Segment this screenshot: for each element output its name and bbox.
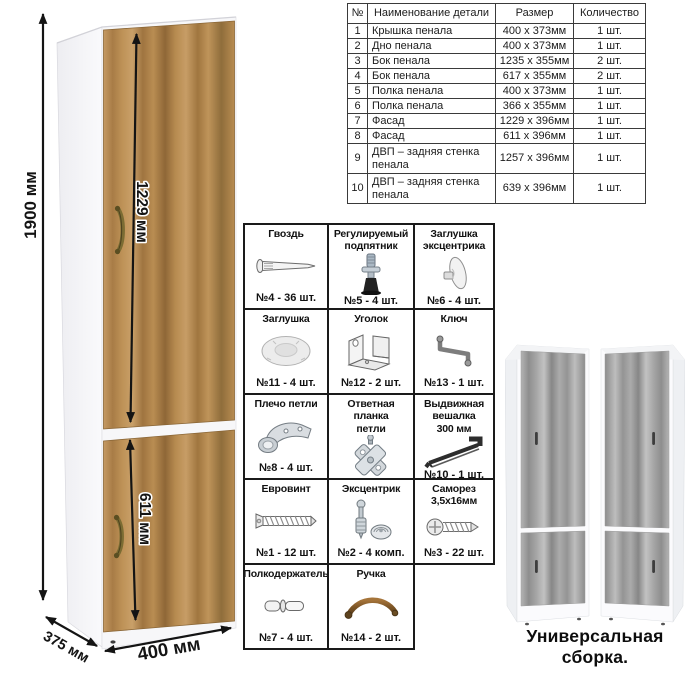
hardware-item: Уголок №12 - 2 шт. bbox=[329, 310, 413, 393]
part-name: Бок пенала bbox=[368, 54, 496, 69]
col-num: № bbox=[348, 4, 368, 24]
part-num: 1 bbox=[348, 24, 368, 39]
part-qty: 1 шт. bbox=[574, 99, 646, 114]
part-qty: 1 шт. bbox=[574, 84, 646, 99]
hardware-count: №1 - 12 шт. bbox=[256, 547, 316, 563]
hardware-title: Саморез 3,5x16мм bbox=[431, 480, 477, 508]
part-size: 1229 x 396мм bbox=[496, 114, 574, 129]
hardware-title: Ответная планка петли bbox=[329, 395, 413, 435]
hardware-title: Заглушка bbox=[262, 310, 309, 325]
hardware-item: Евровинт №1 - 12 шт. bbox=[245, 480, 327, 563]
part-num: 6 bbox=[348, 99, 368, 114]
adjustable-foot-icon bbox=[353, 253, 389, 295]
table-row: 2 Дно пенала 400 x 373мм 1 шт. bbox=[348, 39, 646, 54]
hinge-plate-icon bbox=[347, 435, 395, 477]
hardware-count: №10 - 1 шт. bbox=[424, 469, 484, 478]
wardrobe-side-panel bbox=[57, 27, 102, 647]
hardware-item: Саморез 3,5x16мм №3 - 22 шт. bbox=[415, 480, 493, 563]
part-size: 617 x 355мм bbox=[496, 69, 574, 84]
lower-facade-dimension-label: 611 мм bbox=[136, 493, 153, 545]
hardware-title: Гвоздь bbox=[268, 225, 303, 240]
part-name: ДВП – задняя стенка пенала bbox=[368, 144, 496, 174]
table-row: 5 Полка пенала 400 x 373мм 1 шт. bbox=[348, 84, 646, 99]
part-name: Полка пенала bbox=[368, 84, 496, 99]
part-size: 400 x 373мм bbox=[496, 24, 574, 39]
part-size: 611 x 396мм bbox=[496, 129, 574, 144]
part-size: 400 x 373мм bbox=[496, 84, 574, 99]
euroscrew-icon bbox=[253, 510, 319, 532]
hardware-count: №9 - 4 шт. bbox=[344, 477, 398, 478]
part-num: 4 bbox=[348, 69, 368, 84]
hardware-title: Заглушка эксцентрика bbox=[423, 225, 485, 253]
variants-caption: Универсальная сборка. bbox=[493, 626, 697, 668]
hardware-item: Выдвижная вешалка 300 мм №10 - 1 шт. bbox=[415, 395, 493, 478]
hex-key-icon bbox=[428, 333, 480, 369]
parts-table: № Наименование детали Размер Количество … bbox=[347, 3, 646, 204]
depth-dimension-label: 375 мм bbox=[40, 628, 91, 666]
foot-mark bbox=[110, 640, 115, 643]
cam-cap-icon bbox=[437, 253, 471, 295]
cap-icon bbox=[259, 333, 313, 369]
shelf-pin-icon bbox=[262, 597, 310, 615]
table-row: 10 ДВП – задняя стенка пенала 639 x 396м… bbox=[348, 174, 646, 204]
table-row: 3 Бок пенала 1235 x 355мм 2 шт. bbox=[348, 54, 646, 69]
part-qty: 1 шт. bbox=[574, 174, 646, 204]
variant-cabinet-left bbox=[505, 345, 589, 625]
hardware-title: Ключ bbox=[441, 310, 468, 325]
col-name: Наименование детали bbox=[368, 4, 496, 24]
part-size: 366 x 355мм bbox=[496, 99, 574, 114]
hardware-grid: Гвоздь №4 - 36 шт. Регулируемый подпятни… bbox=[243, 223, 495, 650]
part-qty: 1 шт. bbox=[574, 129, 646, 144]
hardware-item: Ручка №14 - 2 шт. bbox=[329, 565, 413, 648]
part-size: 1257 x 396мм bbox=[496, 144, 574, 174]
hinge-arm-icon bbox=[256, 416, 316, 456]
hardware-title: Полкодержатель bbox=[245, 565, 327, 580]
part-size: 400 x 373мм bbox=[496, 39, 574, 54]
table-row: 7 Фасад 1229 x 396мм 1 шт. bbox=[348, 114, 646, 129]
height-dimension-label: 1900 мм bbox=[21, 171, 40, 239]
part-num: 5 bbox=[348, 84, 368, 99]
table-row: 8 Фасад 611 x 396мм 1 шт. bbox=[348, 129, 646, 144]
hardware-title: Регулируемый подпятник bbox=[334, 225, 408, 253]
part-name: ДВП – задняя стенка пенала bbox=[368, 174, 496, 204]
table-row: 1 Крышка пенала 400 x 373мм 1 шт. bbox=[348, 24, 646, 39]
hardware-title: Евровинт bbox=[261, 480, 310, 495]
part-name: Крышка пенала bbox=[368, 24, 496, 39]
upper-facade-dimension-label: 1229 мм bbox=[133, 181, 150, 243]
part-qty: 1 шт. bbox=[574, 24, 646, 39]
col-qty: Количество bbox=[574, 4, 646, 24]
table-row: 9 ДВП – задняя стенка пенала 1257 x 396м… bbox=[348, 144, 646, 174]
hardware-title: Выдвижная вешалка 300 мм bbox=[424, 395, 484, 435]
part-num: 2 bbox=[348, 39, 368, 54]
hardware-count: №11 - 4 шт. bbox=[256, 377, 316, 393]
part-num: 9 bbox=[348, 144, 368, 174]
part-qty: 2 шт. bbox=[574, 54, 646, 69]
hardware-title: Плечо петли bbox=[254, 395, 317, 410]
table-row: 4 Бок пенала 617 x 355мм 2 шт. bbox=[348, 69, 646, 84]
part-size: 639 x 396мм bbox=[496, 174, 574, 204]
hardware-item: Заглушка эксцентрика №6 - 4 шт. bbox=[415, 225, 493, 308]
part-qty: 1 шт. bbox=[574, 39, 646, 54]
hardware-count: №5 - 4 шт. bbox=[344, 295, 398, 308]
table-header-row: № Наименование детали Размер Количество bbox=[348, 4, 646, 24]
hardware-item: Эксцентрик №2 - 4 комп. bbox=[329, 480, 413, 563]
part-qty: 1 шт. bbox=[574, 144, 646, 174]
part-name: Дно пенала bbox=[368, 39, 496, 54]
cabinet-diagram: 1900 мм 1229 мм 611 мм 375 мм 400 мм bbox=[0, 0, 240, 683]
hardware-count: №8 - 4 шт. bbox=[259, 462, 313, 478]
part-num: 8 bbox=[348, 129, 368, 144]
hardware-item: Ответная планка петли №9 - 4 шт. bbox=[329, 395, 413, 478]
hardware-title: Уголок bbox=[354, 310, 388, 325]
eccentric-icon bbox=[347, 499, 395, 543]
hardware-title: Ручка bbox=[356, 565, 385, 580]
variants-image bbox=[505, 340, 685, 632]
part-size: 1235 x 355мм bbox=[496, 54, 574, 69]
part-num: 10 bbox=[348, 174, 368, 204]
hardware-count: №13 - 1 шт. bbox=[424, 377, 484, 393]
hardware-count: №14 - 2 шт. bbox=[341, 632, 401, 648]
hardware-item: Плечо петли №8 - 4 шт. bbox=[245, 395, 327, 478]
part-qty: 1 шт. bbox=[574, 114, 646, 129]
part-qty: 2 шт. bbox=[574, 69, 646, 84]
hardware-item: Полкодержатель №7 - 4 шт. bbox=[245, 565, 327, 648]
part-name: Фасад bbox=[368, 114, 496, 129]
part-name: Фасад bbox=[368, 129, 496, 144]
hardware-item: Ключ №13 - 1 шт. bbox=[415, 310, 493, 393]
handle-icon bbox=[341, 591, 401, 621]
hardware-count: №7 - 4 шт. bbox=[259, 632, 313, 648]
hardware-count: №6 - 4 шт. bbox=[427, 295, 481, 308]
hardware-count: №12 - 2 шт. bbox=[341, 377, 401, 393]
part-num: 3 bbox=[348, 54, 368, 69]
hardware-item: Заглушка №11 - 4 шт. bbox=[245, 310, 327, 393]
hardware-title: Эксцентрик bbox=[342, 480, 400, 495]
part-name: Полка пенала bbox=[368, 99, 496, 114]
hardware-item: Регулируемый подпятник №5 - 4 шт. bbox=[329, 225, 413, 308]
hardware-count: №4 - 36 шт. bbox=[256, 292, 316, 308]
variant-cabinet-right bbox=[601, 345, 685, 625]
hardware-item: Гвоздь №4 - 36 шт. bbox=[245, 225, 327, 308]
corner-bracket-icon bbox=[343, 331, 399, 371]
selftapping-screw-icon bbox=[425, 514, 483, 540]
part-name: Бок пенала bbox=[368, 69, 496, 84]
part-num: 7 bbox=[348, 114, 368, 129]
pullout-hanger-icon bbox=[423, 435, 485, 469]
table-row: 6 Полка пенала 366 x 355мм 1 шт. bbox=[348, 99, 646, 114]
hardware-count: №2 - 4 комп. bbox=[337, 547, 404, 563]
col-size: Размер bbox=[496, 4, 574, 24]
nail-icon bbox=[254, 256, 318, 276]
hardware-count: №3 - 22 шт. bbox=[424, 547, 484, 563]
